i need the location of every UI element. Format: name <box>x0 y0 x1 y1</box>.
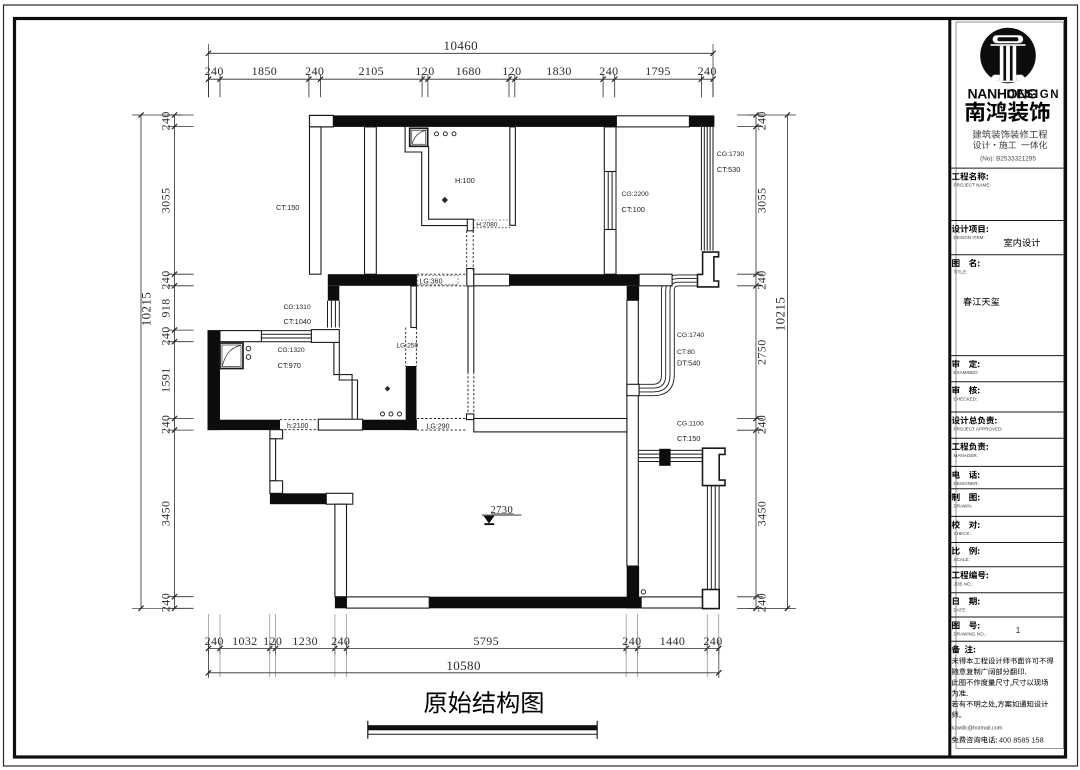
svg-text:240: 240 <box>698 64 717 78</box>
svg-text:918: 918 <box>159 298 173 317</box>
svg-text:CG:1730: CG:1730 <box>717 151 744 158</box>
svg-text:1591: 1591 <box>159 367 173 393</box>
svg-text:240: 240 <box>703 634 722 648</box>
svg-text:2105: 2105 <box>358 64 384 78</box>
svg-text:DESIGNER:: DESIGNER: <box>954 481 979 486</box>
svg-text:CG:1740: CG:1740 <box>677 332 704 339</box>
svg-text:1850: 1850 <box>252 64 278 78</box>
svg-text:1440: 1440 <box>660 634 686 648</box>
svg-text:2730: 2730 <box>491 505 514 516</box>
svg-text:240: 240 <box>599 64 618 78</box>
svg-text:CT:970: CT:970 <box>278 361 301 370</box>
svg-text:CG:1320: CG:1320 <box>278 347 305 354</box>
svg-text:1230: 1230 <box>292 634 318 648</box>
svg-text:DRAWN:: DRAWN: <box>954 503 972 508</box>
svg-text:LG:290: LG:290 <box>427 423 450 430</box>
svg-text:3450: 3450 <box>755 501 769 527</box>
svg-text:PROJECT NAME:: PROJECT NAME: <box>954 183 991 188</box>
svg-text:1795: 1795 <box>645 64 671 78</box>
svg-text:CG:2200: CG:2200 <box>622 191 649 198</box>
svg-text:2750: 2750 <box>755 339 769 365</box>
svg-text:1830: 1830 <box>546 64 572 78</box>
svg-text:DT:540: DT:540 <box>677 359 700 368</box>
svg-text:240: 240 <box>159 270 173 289</box>
svg-text:MANAGER:: MANAGER: <box>954 453 979 458</box>
svg-text:120: 120 <box>502 64 521 78</box>
svg-text:LG:360: LG:360 <box>420 278 443 285</box>
svg-text:240: 240 <box>159 593 173 612</box>
svg-text:CT:150: CT:150 <box>276 203 299 212</box>
svg-text:kzwdlc@hotmail.com: kzwdlc@hotmail.com <box>952 726 1003 732</box>
svg-text:3450: 3450 <box>159 501 173 527</box>
svg-text:120: 120 <box>263 634 282 648</box>
svg-text:1032: 1032 <box>232 634 258 648</box>
svg-text:LG:250: LG:250 <box>397 343 419 350</box>
svg-text:10215: 10215 <box>139 292 154 327</box>
svg-text:240: 240 <box>331 634 350 648</box>
svg-text:CG:1100: CG:1100 <box>677 421 704 428</box>
svg-text:CT:150: CT:150 <box>677 434 700 443</box>
svg-text:h:2100: h:2100 <box>287 423 309 430</box>
svg-text:240: 240 <box>755 593 769 612</box>
svg-text:DESIGN: DESIGN <box>1007 89 1061 101</box>
svg-text:TITLE:: TITLE: <box>954 269 968 274</box>
svg-text:240: 240 <box>205 64 224 78</box>
svg-text:240: 240 <box>305 64 324 78</box>
svg-text:CHECKED:: CHECKED: <box>954 396 978 401</box>
svg-text:CHECK:: CHECK: <box>954 531 971 536</box>
svg-text:EXAMINED:: EXAMINED: <box>954 370 979 375</box>
svg-text:CT:530: CT:530 <box>717 165 740 174</box>
svg-text:JOB NO.:: JOB NO.: <box>954 581 974 586</box>
svg-text:(No): B2533321295: (No): B2533321295 <box>980 156 1036 163</box>
svg-text:CT:1040: CT:1040 <box>284 317 312 326</box>
svg-text:1: 1 <box>1016 626 1021 635</box>
svg-text:3055: 3055 <box>159 188 173 214</box>
svg-text:240: 240 <box>622 634 641 648</box>
svg-text:DRAWING NO.:: DRAWING NO.: <box>954 632 987 637</box>
svg-text:H:100: H:100 <box>455 176 475 185</box>
svg-text:DESIGN ITEM:: DESIGN ITEM: <box>954 235 985 240</box>
svg-text:CT:80: CT:80 <box>677 349 695 356</box>
svg-text:120: 120 <box>415 64 434 78</box>
svg-text:240: 240 <box>159 326 173 345</box>
svg-text:PROJECT APPROVED:: PROJECT APPROVED: <box>954 427 1003 432</box>
svg-text:240: 240 <box>755 111 769 130</box>
svg-text:10460: 10460 <box>444 38 479 53</box>
svg-text:240: 240 <box>755 270 769 289</box>
svg-text:240: 240 <box>205 634 224 648</box>
svg-text:CG:1310: CG:1310 <box>284 304 311 311</box>
svg-text:240: 240 <box>159 415 173 434</box>
svg-text:CT:100: CT:100 <box>622 205 645 214</box>
svg-text:SCALE:: SCALE: <box>954 557 970 562</box>
svg-text:1680: 1680 <box>456 64 482 78</box>
svg-text:5795: 5795 <box>473 634 499 648</box>
svg-text:DATE:: DATE: <box>954 607 967 612</box>
svg-text:240: 240 <box>755 415 769 434</box>
svg-text:3055: 3055 <box>755 188 769 214</box>
svg-text:10580: 10580 <box>446 658 481 673</box>
svg-text:240: 240 <box>159 111 173 130</box>
svg-text:10215: 10215 <box>773 297 788 332</box>
svg-text:400 8585 158: 400 8585 158 <box>999 736 1044 745</box>
svg-text:H:2080: H:2080 <box>476 221 498 228</box>
